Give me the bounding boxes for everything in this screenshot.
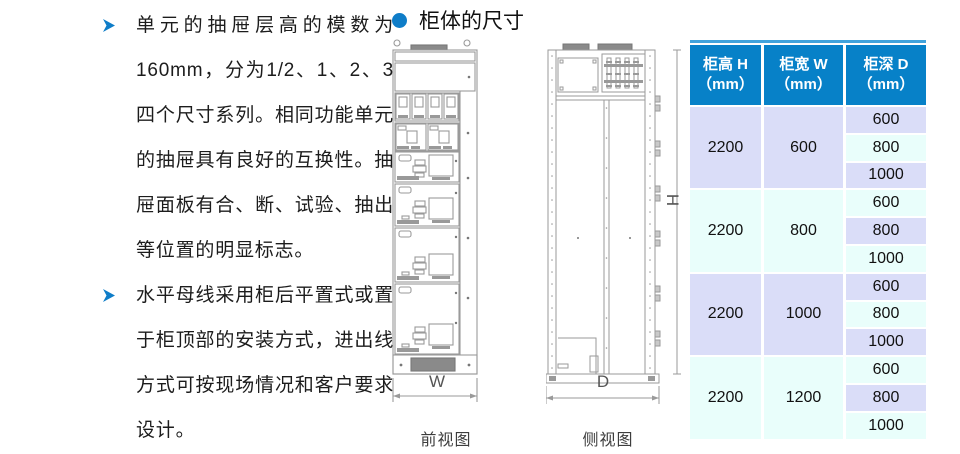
table-top-accent [690, 40, 926, 43]
cell-width: 1000 [764, 274, 843, 355]
cell-width: 600 [764, 107, 843, 188]
cell-depth: 800 [846, 135, 926, 161]
section-header: 柜体的尺寸 [392, 5, 524, 35]
arrow-bullet-icon [102, 18, 117, 33]
table-header-width: 柜宽 W （mm） [764, 45, 843, 105]
cell-width: 1200 [764, 357, 843, 438]
list-item-text: 单元的抽屉层高的模数为160mm，分为1/2、1、2、3四个尺寸系列。相同功能单… [136, 15, 394, 261]
spec-table: 柜高 H （mm） 柜宽 W （mm） 柜深 D （mm） 2200 600 6… [690, 40, 926, 439]
table-header-height: 柜高 H （mm） [690, 45, 761, 105]
cell-height: 2200 [690, 274, 761, 355]
bullet-list: 单元的抽屉层高的模数为160mm，分为1/2、1、2、3四个尺寸系列。相同功能单… [136, 3, 394, 453]
width-dim-label: W [417, 372, 457, 392]
cell-depth: 800 [846, 218, 926, 244]
cell-depth: 1000 [846, 163, 926, 189]
side-view-caption: 侧视图 [563, 426, 653, 450]
depth-dim-label: D [583, 372, 623, 392]
list-item: 单元的抽屉层高的模数为160mm，分为1/2、1、2、3四个尺寸系列。相同功能单… [136, 3, 394, 273]
cell-height: 2200 [690, 107, 761, 188]
cell-height: 2200 [690, 190, 761, 271]
front-view-drawing [391, 38, 483, 408]
cell-depth: 1000 [846, 329, 926, 355]
list-item-text: 水平母线采用柜后平置式或置于柜顶部的安装方式，进出线方式可按现场情况和客户要求设… [136, 285, 394, 441]
cell-depth: 600 [846, 274, 926, 300]
front-view-caption: 前视图 [401, 426, 491, 450]
cell-depth: 800 [846, 385, 926, 411]
side-view-drawing [546, 38, 686, 408]
cell-depth: 1000 [846, 246, 926, 272]
cell-depth: 600 [846, 357, 926, 383]
cell-depth: 1000 [846, 413, 926, 439]
cell-depth: 600 [846, 107, 926, 133]
bullet-circle-icon [392, 13, 407, 28]
arrow-bullet-icon [102, 288, 117, 303]
height-dim-label: H [662, 180, 682, 220]
list-item: 水平母线采用柜后平置式或置于柜顶部的安装方式，进出线方式可按现场情况和客户要求设… [136, 273, 394, 453]
cell-width: 800 [764, 190, 843, 271]
cell-depth: 600 [846, 190, 926, 216]
cell-depth: 800 [846, 302, 926, 328]
table-header-depth: 柜深 D （mm） [846, 45, 926, 105]
section-title: 柜体的尺寸 [419, 5, 524, 35]
cell-height: 2200 [690, 357, 761, 438]
